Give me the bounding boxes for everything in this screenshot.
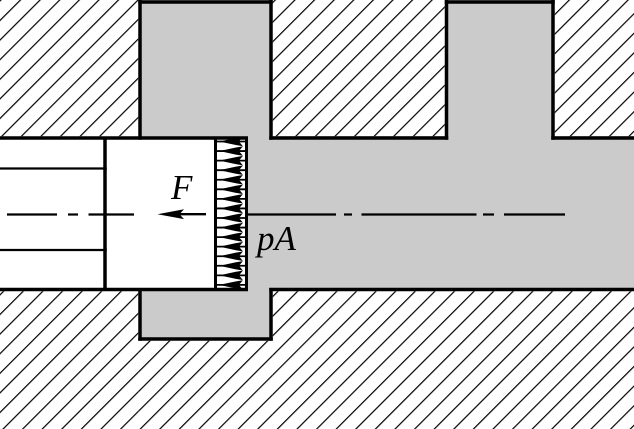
- svg-text:F: F: [170, 168, 193, 207]
- svg-text:pA: pA: [254, 219, 297, 258]
